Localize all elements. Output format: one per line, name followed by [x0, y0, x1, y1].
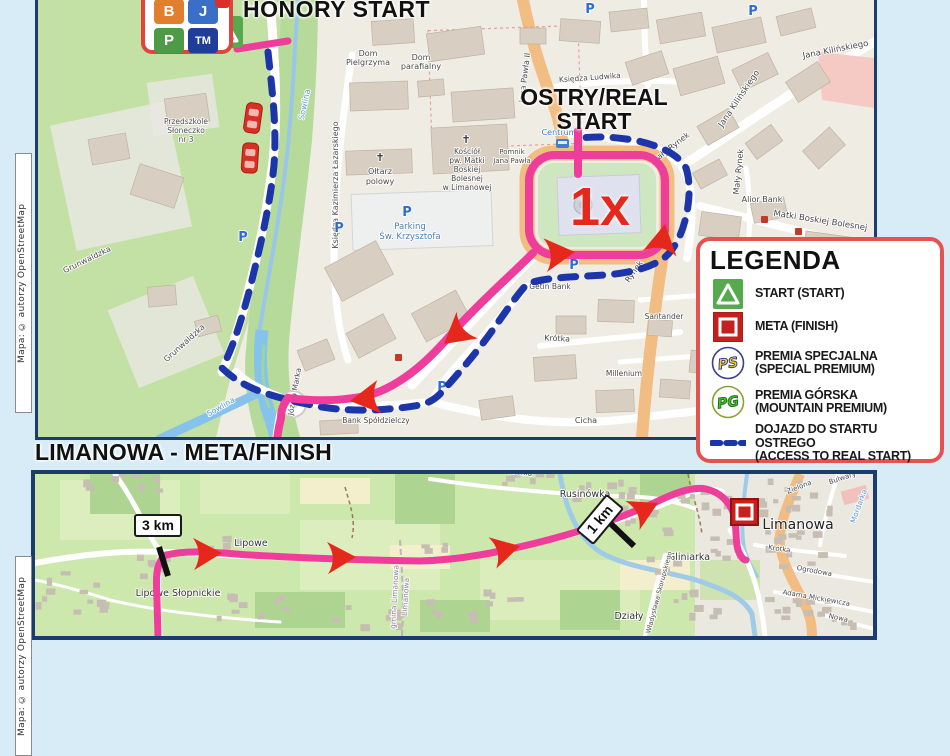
svg-text:pw. Matki: pw. Matki: [449, 156, 484, 165]
svg-text:P: P: [238, 230, 248, 245]
legend-label: META (FINISH): [755, 320, 838, 334]
shrine-icon: [761, 216, 768, 223]
svg-text:Jana Pawła: Jana Pawła: [492, 157, 531, 165]
svg-text:Krótka: Krótka: [544, 332, 570, 343]
cut-marker: [215, 0, 230, 8]
race-categories-box: B J P TM: [141, 0, 233, 54]
svg-text:P: P: [569, 258, 579, 273]
legend-label: PREMIA SPECJALNA(SPECIAL PREMIUM): [755, 350, 878, 377]
bottom-map-canvas: RusinówkaLipoweLipowe SłopnickieGliniark…: [35, 474, 873, 636]
svg-text:Św. Krzysztofa: Św. Krzysztofa: [379, 230, 440, 242]
legend-row-meta: META (FINISH): [710, 312, 932, 342]
svg-text:Przedszkole: Przedszkole: [164, 117, 208, 126]
svg-text:parafialny: parafialny: [401, 62, 441, 71]
real-start-title-line2: START: [510, 110, 678, 134]
svg-text:Kościół: Kościół: [454, 147, 481, 156]
dash-icon: [710, 437, 746, 449]
svg-text:Pielgrzyma: Pielgrzyma: [346, 58, 390, 67]
svg-text:P: P: [334, 221, 344, 236]
svg-text:PS: PS: [717, 355, 739, 374]
category-badge-j: J: [188, 0, 218, 24]
svg-text:Bank Spółdzielczy: Bank Spółdzielczy: [342, 416, 410, 425]
legend-row-access-route: DOJAZD DO STARTU OSTREGO(ACCESS TO REAL …: [710, 423, 932, 464]
bottom-section-title: LIMANOWA - META/FINISH: [35, 441, 332, 465]
svg-text:PG: PG: [716, 394, 740, 413]
svg-text:Alior Bank: Alior Bank: [742, 195, 783, 204]
legend-row-start: START (START): [710, 279, 932, 309]
legend-title: LEGENDA: [710, 245, 932, 276]
real-start-title-line1: OSTRY/REAL: [510, 86, 678, 110]
category-badge-b: B: [154, 0, 184, 24]
svg-text:Dom: Dom: [359, 49, 378, 58]
category-badge-p: P: [154, 28, 184, 53]
svg-text:Lipowe: Lipowe: [234, 538, 268, 549]
real-start-title: OSTRY/REAL START: [510, 86, 678, 134]
legend-row-special-premium: PS PREMIA SPECJALNA(SPECIAL PREMIUM): [710, 345, 932, 381]
lap-count-label: 1x: [570, 176, 630, 238]
svg-text:Limanowa: Limanowa: [762, 517, 833, 533]
svg-text:P: P: [748, 4, 758, 19]
svg-text:Boskiej: Boskiej: [454, 165, 481, 174]
shrine-icon: [395, 354, 402, 361]
svg-text:w Limanowej: w Limanowej: [443, 183, 492, 192]
pg-icon: PG: [710, 384, 746, 420]
car-icon: [243, 102, 263, 134]
svg-text:Santander: Santander: [645, 312, 685, 321]
svg-text:Pomnik: Pomnik: [499, 148, 525, 156]
svg-text:Bolesnej: Bolesnej: [451, 174, 483, 183]
svg-text:Cicha: Cicha: [575, 416, 597, 425]
legend-label: DOJAZD DO STARTU OSTREGO(ACCESS TO REAL …: [755, 423, 932, 464]
car-icon: [241, 142, 259, 173]
svg-text:Słoneczko: Słoneczko: [167, 126, 205, 135]
svg-text:nr 3: nr 3: [179, 135, 194, 144]
svg-text:polowy: polowy: [366, 177, 395, 186]
svg-text:Dom: Dom: [412, 53, 431, 62]
map-attribution: Mapa: © autorzy OpenStreetMap: [15, 556, 32, 756]
svg-text:Działy: Działy: [614, 611, 643, 622]
race-map-page: { "attribution": { "text": "Mapa: © auto…: [0, 0, 950, 632]
svg-text:Parking: Parking: [394, 222, 426, 232]
category-badge-tm: TM: [188, 28, 218, 53]
legend: LEGENDA START (START) META (FINISH) PS P…: [696, 237, 944, 463]
legend-label: PREMIA GÓRSKA(MOUNTAIN PREMIUM): [755, 389, 887, 416]
svg-text:Ołtarz: Ołtarz: [368, 167, 392, 176]
meta-icon: [710, 312, 746, 342]
ps-icon: PS: [710, 345, 746, 381]
meta-finish-marker: [731, 499, 758, 525]
bottom-map-panel: RusinówkaLipoweLipowe SłopnickieGliniark…: [31, 470, 877, 640]
start-icon: [710, 279, 746, 309]
svg-text:P: P: [402, 205, 412, 220]
svg-text:✝: ✝: [375, 151, 384, 164]
map-attribution: Mapa: © autorzy OpenStreetMap: [15, 153, 32, 413]
svg-text:✝: ✝: [461, 133, 470, 146]
svg-text:Gliniarka: Gliniarka: [668, 552, 710, 563]
shrine-icon: [795, 228, 802, 235]
svg-text:P: P: [585, 2, 595, 17]
km3-marker-label: 3 km: [134, 514, 182, 537]
honorary-start-title: HONORY START: [243, 0, 430, 22]
svg-text:Millenium: Millenium: [606, 369, 642, 378]
legend-label: START (START): [755, 287, 844, 301]
legend-row-mountain-premium: PG PREMIA GÓRSKA(MOUNTAIN PREMIUM): [710, 384, 932, 420]
svg-text:Lipowe Słopnickie: Lipowe Słopnickie: [136, 588, 221, 599]
